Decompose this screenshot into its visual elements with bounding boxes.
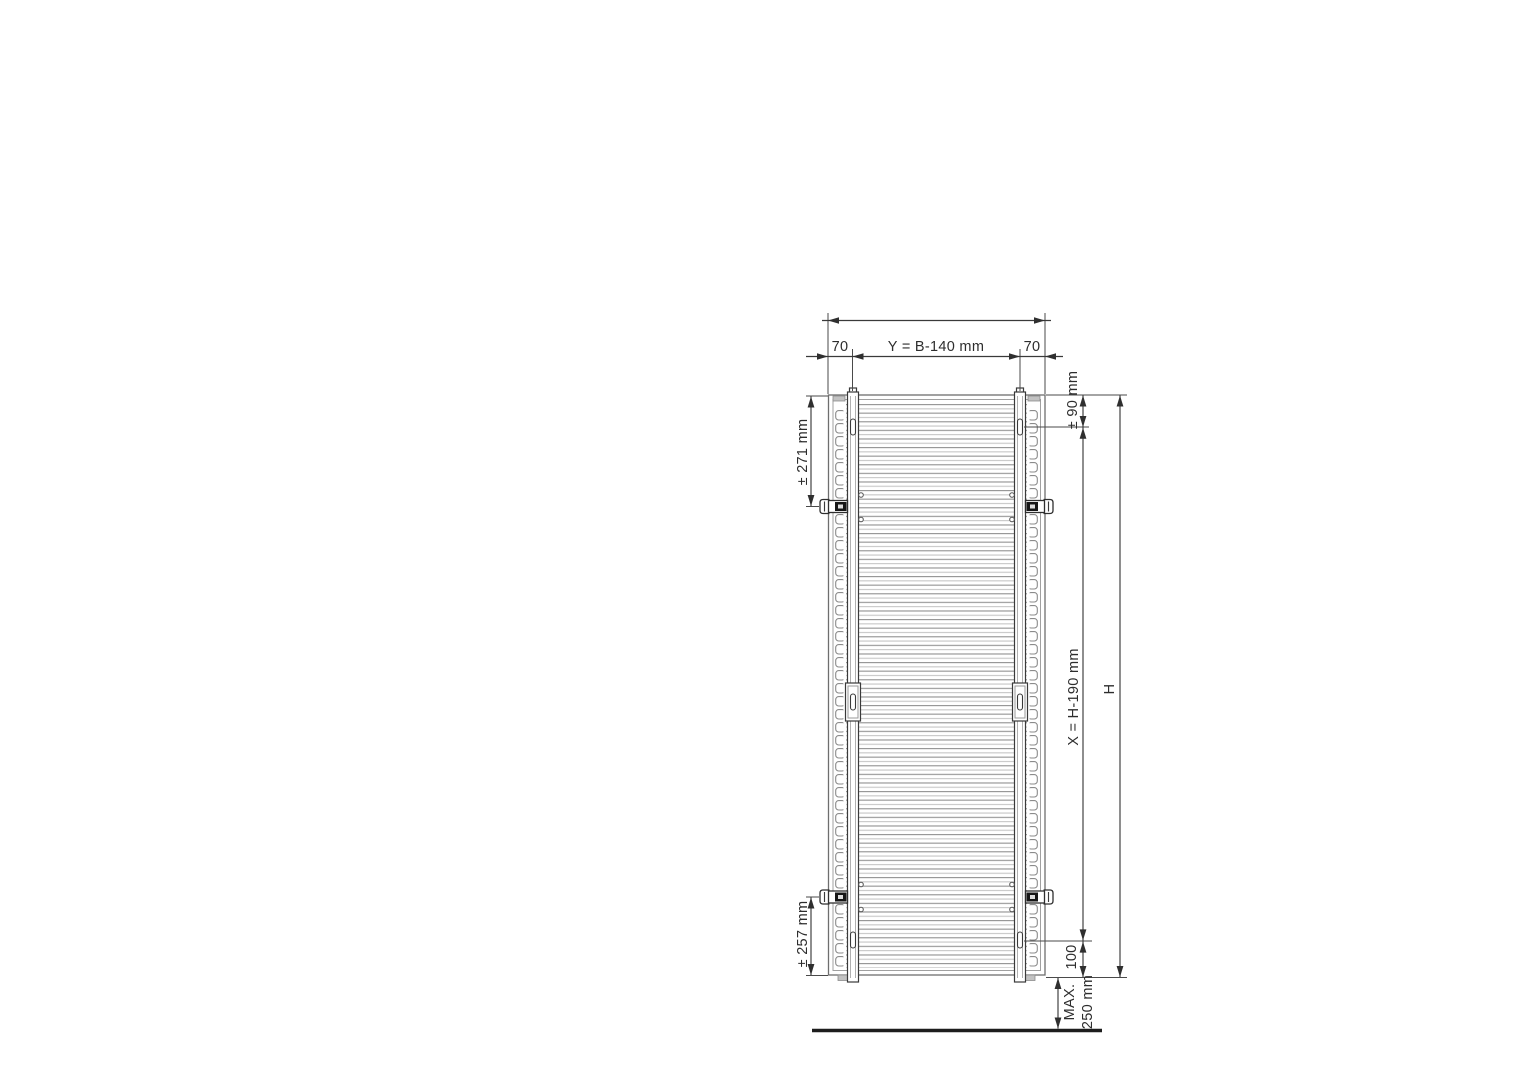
rail-hole (859, 517, 864, 522)
rail-slot-middle-left (851, 694, 856, 710)
rail-hole (859, 493, 864, 498)
rail-hole (1010, 493, 1015, 498)
label-floor-clearance-value: 250 mm (1080, 975, 1096, 1029)
arrowhead (1055, 1018, 1062, 1029)
wall-bracket-upper-right (1026, 500, 1054, 514)
arrowhead (1080, 929, 1087, 940)
rail-hole (1010, 907, 1015, 912)
arrowhead (1055, 978, 1062, 989)
top-grille-tab-right (1028, 396, 1040, 401)
wall-bracket-upper-left (820, 500, 848, 514)
arrowhead (808, 495, 815, 506)
dimension-width-offsets: 70 Y = B-140 mm 70 (806, 339, 1063, 391)
arrowhead (1034, 317, 1045, 324)
arrowhead (808, 397, 815, 408)
arrowhead (1009, 353, 1020, 360)
label-lower-bracket-range: ± 257 mm (795, 901, 811, 968)
arrowhead (1117, 396, 1124, 407)
diagram-canvas: 70 Y = B-140 mm 70 ± 90 mm X = H-190 mm … (0, 0, 1527, 1080)
dimension-upper-bracket-range: ± 271 mm (795, 396, 828, 507)
label-width-left-offset: 70 (832, 339, 849, 355)
label-bottom-mount-offset: 100 (1064, 944, 1080, 969)
label-mount-span: X = H-190 mm (1066, 648, 1082, 745)
radiator-installation-drawing: 70 Y = B-140 mm 70 ± 90 mm X = H-190 mm … (0, 0, 1527, 1080)
label-upper-bracket-range: ± 271 mm (795, 419, 811, 486)
radiator-tubes (846, 404, 1027, 968)
rail-hole (859, 882, 864, 887)
convector-fins-left (835, 408, 846, 968)
rail-slot-middle-right (1018, 694, 1023, 710)
rail-hole (1010, 882, 1015, 887)
dimension-lower-bracket-range: ± 257 mm (795, 897, 828, 976)
wall-bracket-lower-right (1026, 890, 1054, 904)
rail-hole (859, 907, 864, 912)
convector-fins-right (1027, 408, 1038, 968)
label-floor-clearance-max: MAX. (1062, 984, 1078, 1021)
rail-slot-top-left (851, 419, 856, 435)
rail-slot-bottom-right (1018, 932, 1023, 948)
wall-bracket-lower-left (820, 890, 848, 904)
arrowhead (817, 353, 828, 360)
rail-slot-bottom-left (851, 932, 856, 948)
arrowhead (1117, 966, 1124, 977)
label-overall-height: H (1102, 684, 1118, 695)
arrowhead (1080, 942, 1087, 953)
arrowhead (853, 353, 864, 360)
dimension-floor-clearance: MAX. 250 mm (1055, 975, 1096, 1029)
arrowhead (1045, 353, 1056, 360)
rail-slot-top-right (1018, 419, 1023, 435)
dimension-overall-height: H (1102, 396, 1123, 978)
label-top-mount-offset: ± 90 mm (1065, 371, 1081, 429)
top-grille-tab-left (833, 396, 845, 401)
label-width-center-span: Y = B-140 mm (888, 339, 984, 355)
rail-hole (1010, 517, 1015, 522)
label-width-right-offset: 70 (1024, 339, 1041, 355)
arrowhead (828, 317, 839, 324)
